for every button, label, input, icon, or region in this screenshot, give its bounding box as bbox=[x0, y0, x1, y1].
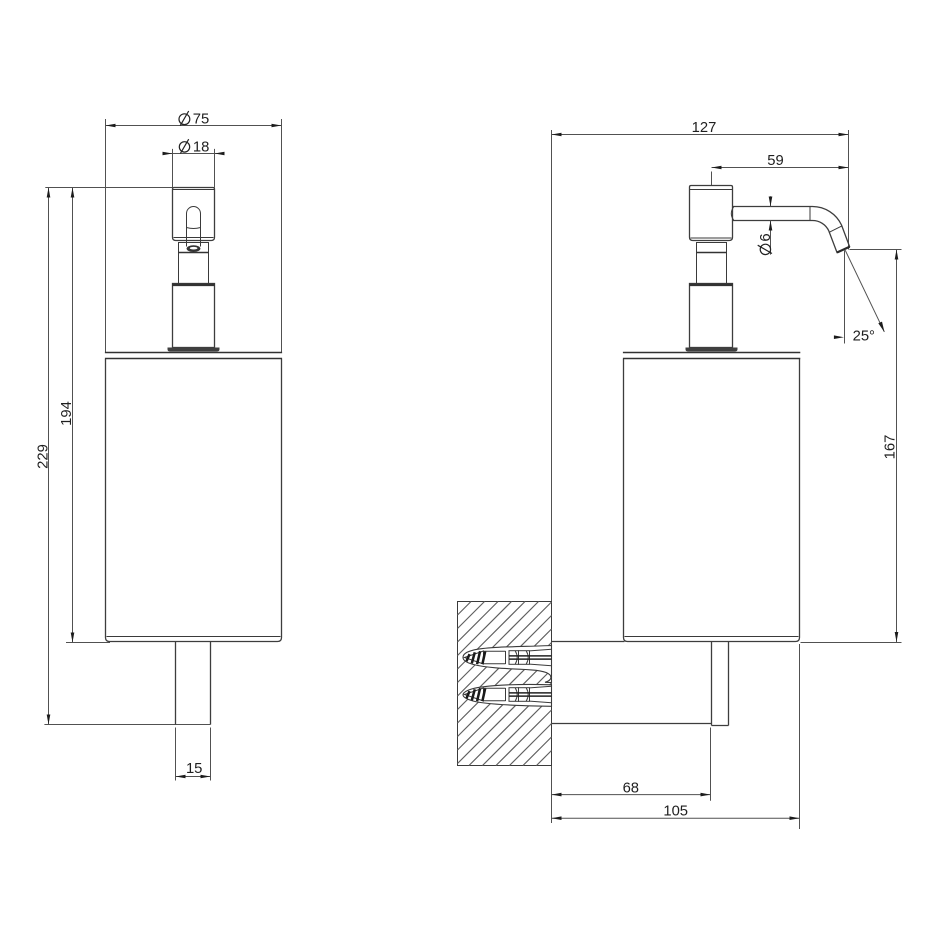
svg-text:167: 167 bbox=[882, 435, 898, 460]
svg-text:194: 194 bbox=[59, 401, 75, 426]
svg-text:229: 229 bbox=[36, 444, 52, 469]
svg-text:105: 105 bbox=[663, 803, 688, 819]
svg-text:25°: 25° bbox=[853, 329, 875, 345]
svg-text:15: 15 bbox=[186, 761, 202, 777]
svg-text:68: 68 bbox=[623, 781, 639, 797]
svg-text:59: 59 bbox=[767, 153, 783, 169]
svg-text:127: 127 bbox=[692, 120, 717, 136]
svg-text:75: 75 bbox=[193, 111, 209, 127]
svg-text:6: 6 bbox=[758, 233, 774, 241]
svg-text:18: 18 bbox=[193, 139, 209, 155]
